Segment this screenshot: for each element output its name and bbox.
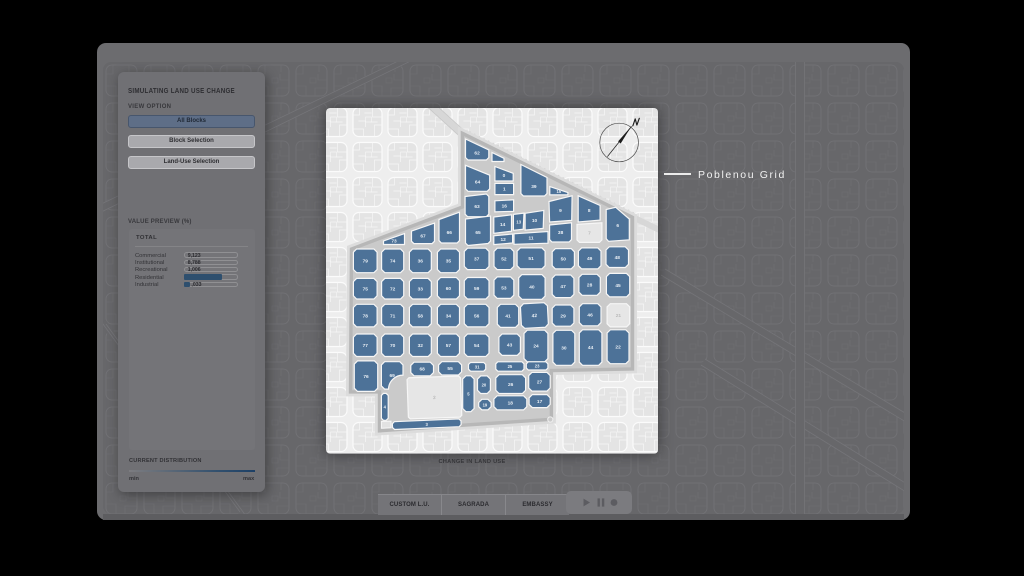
svg-text:77: 77	[362, 343, 368, 349]
svg-text:44: 44	[587, 345, 593, 351]
svg-text:29: 29	[560, 313, 566, 319]
svg-text:48: 48	[614, 255, 620, 261]
svg-text:20: 20	[481, 382, 486, 387]
svg-text:42: 42	[531, 313, 537, 319]
svg-text:59: 59	[474, 286, 480, 292]
svg-text:56: 56	[474, 313, 480, 319]
svg-text:18: 18	[507, 401, 513, 407]
svg-text:16: 16	[501, 204, 507, 210]
svg-text:53: 53	[501, 285, 507, 291]
svg-text:55: 55	[447, 366, 453, 372]
svg-text:22: 22	[615, 344, 621, 350]
svg-text:75: 75	[362, 286, 368, 292]
svg-text:74: 74	[390, 259, 396, 265]
svg-text:50: 50	[560, 256, 566, 262]
svg-text:78: 78	[362, 313, 368, 319]
svg-text:66: 66	[446, 230, 452, 236]
svg-text:51: 51	[528, 256, 534, 262]
svg-text:26: 26	[508, 382, 514, 388]
svg-text:63: 63	[474, 204, 480, 210]
svg-text:45: 45	[615, 283, 621, 289]
svg-text:35: 35	[445, 259, 451, 265]
svg-text:12: 12	[500, 237, 506, 243]
svg-text:73: 73	[391, 239, 397, 245]
svg-text:60: 60	[445, 286, 451, 292]
svg-text:67: 67	[420, 234, 426, 240]
svg-text:38: 38	[557, 230, 563, 236]
svg-text:37: 37	[474, 257, 480, 263]
svg-text:1: 1	[502, 187, 505, 193]
svg-text:19: 19	[482, 402, 487, 407]
svg-text:24: 24	[533, 344, 539, 350]
svg-text:65: 65	[475, 230, 481, 236]
svg-text:68: 68	[419, 367, 425, 373]
svg-text:72: 72	[390, 286, 396, 292]
svg-text:46: 46	[587, 312, 593, 318]
svg-text:40: 40	[529, 285, 535, 291]
svg-text:33: 33	[417, 286, 423, 292]
svg-text:6: 6	[616, 223, 619, 229]
svg-text:0: 0	[502, 173, 505, 179]
svg-text:21: 21	[615, 313, 621, 319]
svg-text:17: 17	[536, 399, 542, 405]
svg-text:69: 69	[389, 373, 395, 379]
svg-text:14: 14	[500, 222, 506, 228]
svg-text:58: 58	[417, 313, 423, 319]
svg-text:79: 79	[362, 259, 368, 265]
svg-text:39: 39	[531, 184, 537, 190]
svg-text:64: 64	[474, 180, 480, 186]
svg-text:71: 71	[390, 313, 396, 319]
svg-text:43: 43	[506, 342, 512, 348]
svg-text:34: 34	[445, 313, 451, 319]
svg-text:25: 25	[507, 364, 512, 369]
svg-text:30: 30	[561, 346, 567, 352]
svg-text:54: 54	[474, 343, 480, 349]
svg-text:10: 10	[531, 218, 537, 224]
svg-text:23: 23	[534, 364, 539, 369]
svg-text:41: 41	[505, 314, 511, 320]
svg-text:15: 15	[556, 189, 561, 194]
svg-text:36: 36	[417, 259, 423, 265]
svg-text:57: 57	[445, 343, 451, 349]
svg-text:27: 27	[536, 379, 542, 385]
svg-text:8: 8	[587, 208, 590, 214]
svg-text:76: 76	[363, 374, 369, 380]
svg-text:9: 9	[559, 208, 562, 214]
svg-text:11: 11	[528, 236, 533, 242]
svg-text:62: 62	[474, 150, 480, 156]
svg-text:32: 32	[417, 343, 423, 349]
svg-text:7: 7	[588, 230, 591, 236]
svg-text:28: 28	[586, 283, 592, 289]
svg-text:31: 31	[474, 365, 479, 370]
svg-text:52: 52	[501, 257, 507, 263]
svg-text:13: 13	[516, 219, 521, 224]
svg-text:47: 47	[560, 284, 566, 290]
svg-text:49: 49	[587, 256, 593, 262]
svg-text:70: 70	[390, 343, 396, 349]
